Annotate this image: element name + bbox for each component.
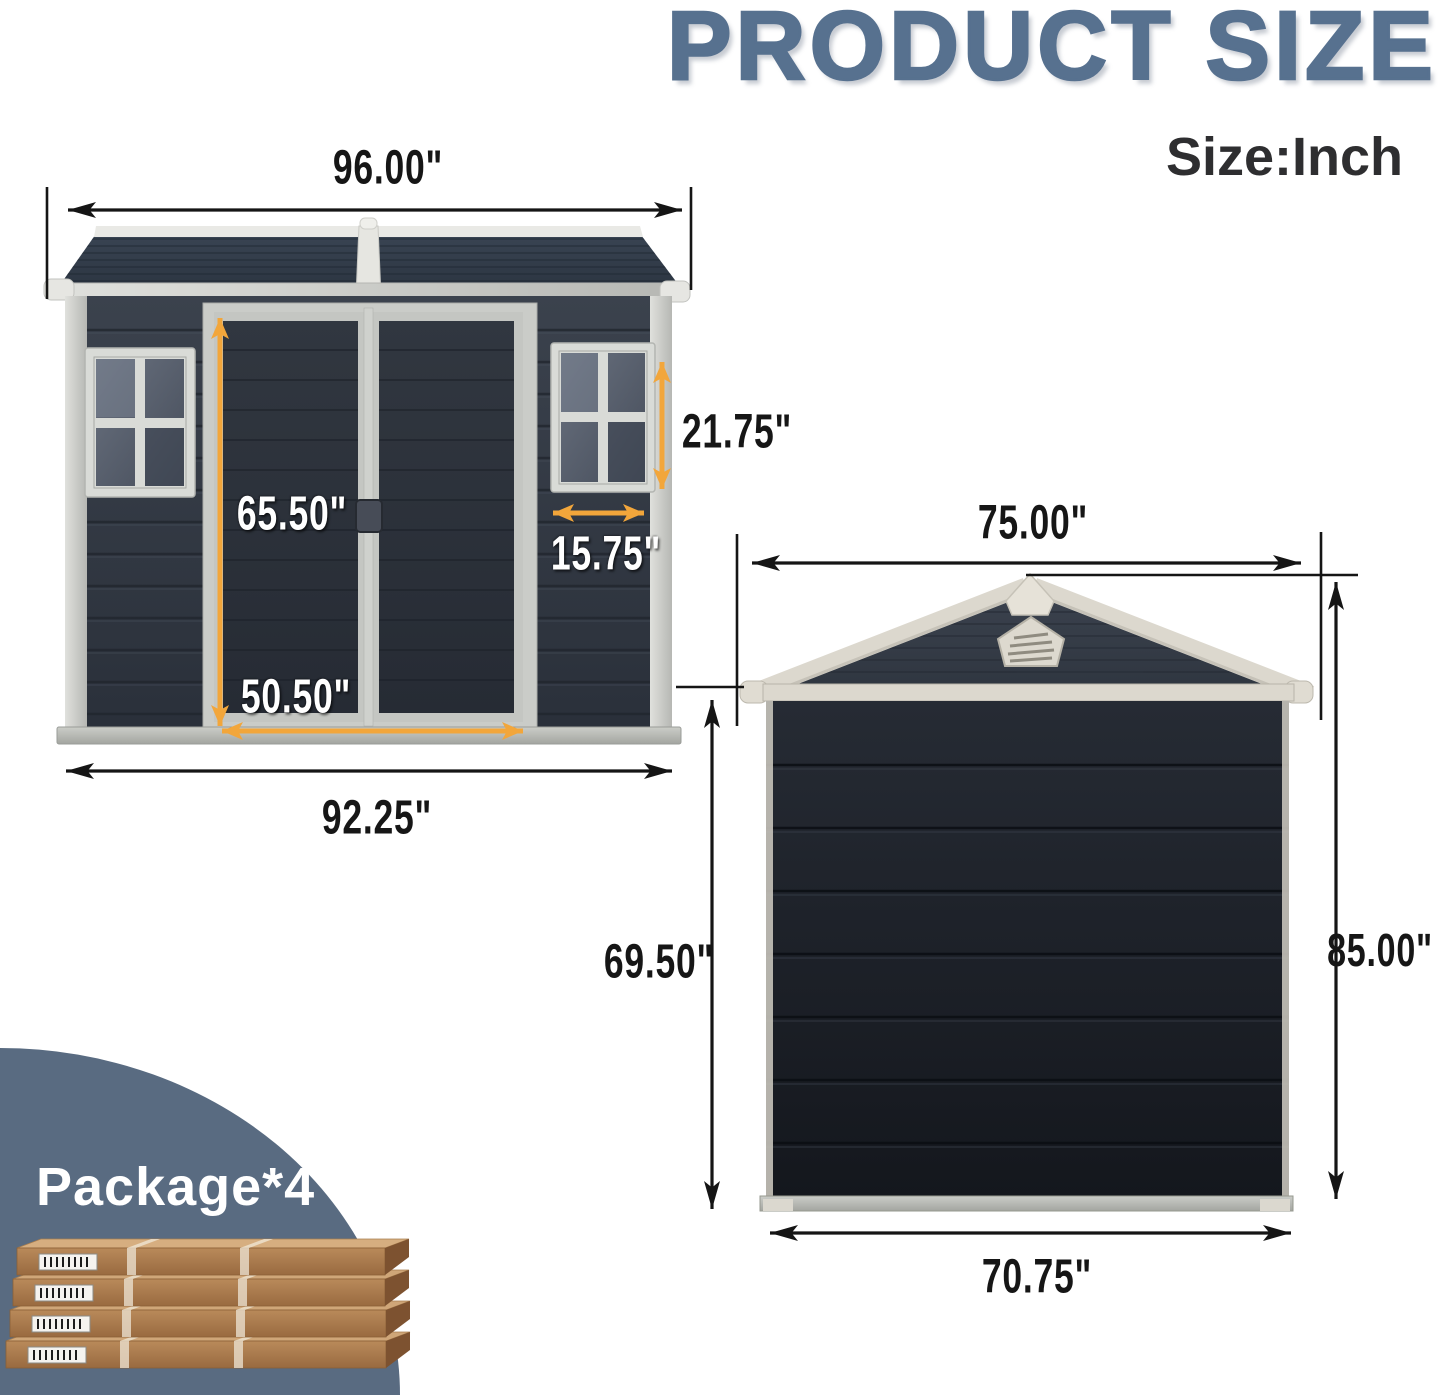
back-wall (766, 701, 1289, 1198)
front-shed-illustration (44, 218, 690, 744)
back-base (760, 1196, 1293, 1211)
dim-label-back-wall-height: 69.50" (604, 935, 714, 990)
product-size-infographic: PRODUCT SIZE Size:Inch 96.00" 65.50" 50.… (0, 0, 1445, 1395)
door-latch (356, 500, 382, 532)
dim-label-front-door-width: 50.50" (241, 670, 351, 725)
dim-label-back-base-width: 70.75" (982, 1250, 1092, 1305)
gable-peak-cap (1006, 574, 1054, 615)
corner-trim-left (65, 296, 87, 730)
package-count-label: Package*4 (36, 1156, 315, 1218)
page-title: PRODUCT SIZE (667, 0, 1437, 102)
dim-label-front-door-height: 65.50" (237, 487, 347, 542)
unit-subtitle: Size:Inch (1166, 126, 1403, 188)
eave-fascia (50, 283, 684, 298)
dim-label-back-roof-width: 75.00" (978, 496, 1088, 551)
dim-label-front-window-height: 21.75" (682, 405, 792, 460)
dim-label-front-window-width: 15.75" (551, 527, 661, 582)
dim-label-front-roof-width: 96.00" (333, 141, 443, 196)
front-window-right (551, 343, 655, 492)
back-shed-illustration (740, 574, 1313, 1211)
dim-label-back-total-height: 85.00" (1327, 923, 1433, 977)
front-window-left (85, 348, 195, 497)
back-eave-band (763, 684, 1294, 701)
dim-label-front-body-width: 92.25" (322, 791, 432, 846)
package-stack (6, 1239, 410, 1368)
